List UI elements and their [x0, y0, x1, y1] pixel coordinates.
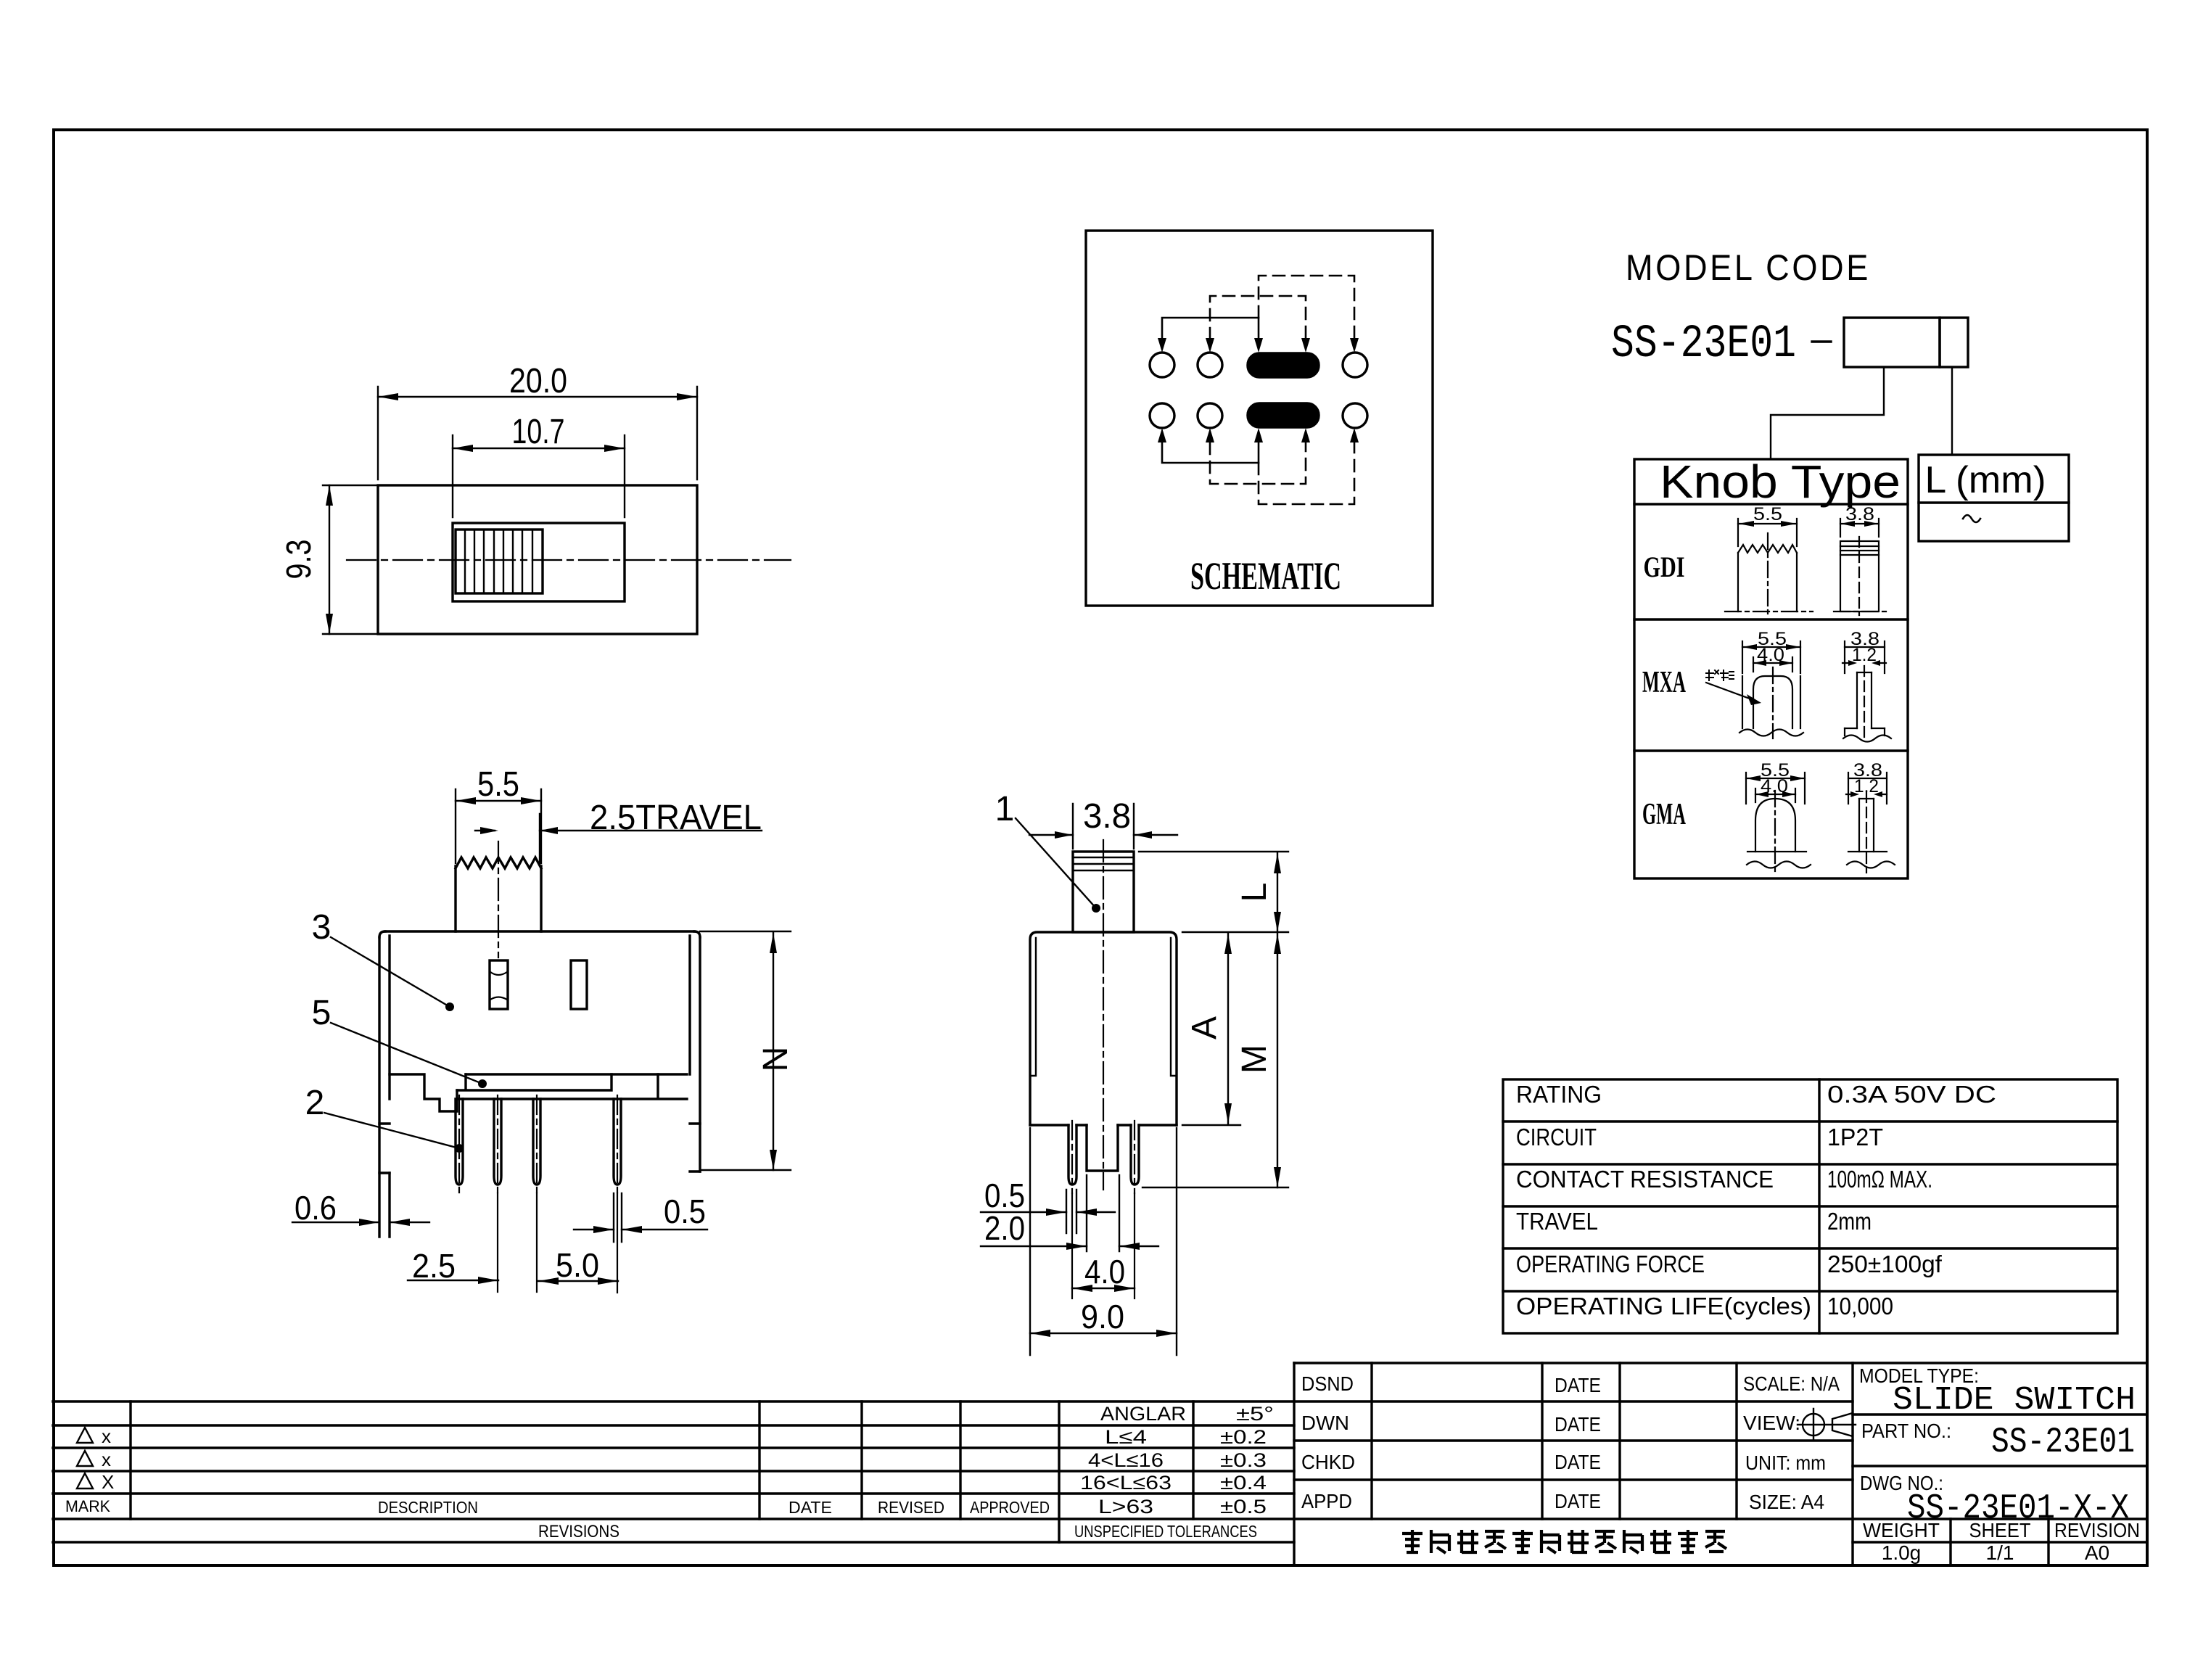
svg-text:SIZE: A4: SIZE: A4 [1749, 1491, 1824, 1513]
svg-text:±0.4: ±0.4 [1220, 1472, 1267, 1494]
svg-text:L>63: L>63 [1098, 1496, 1153, 1518]
svg-text:±5°: ±5° [1236, 1403, 1274, 1425]
svg-text:DATE: DATE [789, 1498, 832, 1517]
svg-text:RATING: RATING [1516, 1081, 1602, 1108]
svg-text:20.0: 20.0 [509, 362, 567, 400]
svg-text:9.0: 9.0 [1081, 1298, 1124, 1335]
svg-text:4.0: 4.0 [1757, 645, 1784, 665]
svg-text:±0.5: ±0.5 [1220, 1496, 1267, 1518]
svg-text:REVISIONS: REVISIONS [538, 1522, 619, 1541]
svg-text:1.2: 1.2 [1854, 776, 1879, 796]
svg-text:5.0: 5.0 [556, 1246, 599, 1284]
svg-text:L (mm): L (mm) [1925, 459, 2046, 501]
svg-text:5: 5 [312, 994, 332, 1032]
svg-text:x: x [102, 1449, 111, 1470]
svg-text:9.3: 9.3 [280, 540, 318, 580]
svg-text:1: 1 [995, 790, 1015, 828]
svg-text:10,000: 10,000 [1827, 1293, 1893, 1319]
svg-text:4<L≤16: 4<L≤16 [1088, 1449, 1164, 1471]
svg-text:PART NO.:: PART NO.: [1861, 1420, 1951, 1442]
svg-text:SS-23E01-X-X: SS-23E01-X-X [1907, 1489, 2129, 1528]
svg-text:UNSPECIFIED TOLERANCES: UNSPECIFIED TOLERANCES [1074, 1522, 1257, 1541]
svg-text:2.5TRAVEL: 2.5TRAVEL [590, 799, 762, 837]
svg-text:A: A [1185, 1016, 1224, 1039]
svg-text:SCHEMATIC: SCHEMATIC [1190, 554, 1341, 598]
svg-text:1.0g: 1.0g [1882, 1541, 1922, 1564]
svg-text:N: N [757, 1047, 795, 1072]
svg-text:M: M [1235, 1045, 1274, 1074]
svg-text:3.8: 3.8 [1845, 504, 1874, 524]
svg-text:SCALE: N/A: SCALE: N/A [1743, 1372, 1840, 1395]
svg-text:2.0: 2.0 [984, 1209, 1025, 1247]
svg-text:CHKD: CHKD [1301, 1451, 1355, 1473]
svg-text:SS-23E01: SS-23E01 [1611, 318, 1796, 371]
svg-text:CIRCUIT: CIRCUIT [1516, 1124, 1597, 1150]
svg-text:DATE: DATE [1555, 1413, 1601, 1436]
svg-text:DATE: DATE [1555, 1490, 1601, 1512]
svg-text:±0.2: ±0.2 [1220, 1426, 1267, 1448]
svg-text:5.5: 5.5 [477, 765, 519, 804]
svg-text:X: X [102, 1471, 114, 1493]
svg-text:A0: A0 [2085, 1541, 2109, 1564]
svg-text:1.2: 1.2 [1852, 645, 1877, 665]
svg-text:0.3A 50V DC: 0.3A 50V DC [1827, 1081, 1996, 1108]
svg-text:CONTACT RESISTANCE: CONTACT RESISTANCE [1516, 1166, 1774, 1193]
svg-text:UNIT: mm: UNIT: mm [1745, 1452, 1826, 1474]
svg-text:OPERATING FORCE: OPERATING FORCE [1516, 1251, 1705, 1277]
svg-text:3: 3 [312, 908, 332, 947]
svg-text:DATE: DATE [1555, 1451, 1601, 1473]
svg-text:MXA: MXA [1642, 666, 1686, 699]
svg-text:SLIDE SWITCH: SLIDE SWITCH [1893, 1382, 2136, 1419]
svg-text:GDI: GDI [1644, 551, 1685, 583]
svg-text:2mm: 2mm [1827, 1208, 1872, 1235]
svg-text:DATE: DATE [1555, 1374, 1601, 1396]
svg-text:L: L [1235, 883, 1274, 902]
svg-text:±0.3: ±0.3 [1220, 1449, 1267, 1471]
svg-text:DWN: DWN [1301, 1412, 1349, 1434]
svg-text:x: x [102, 1425, 111, 1447]
svg-text:APPROVED: APPROVED [970, 1498, 1050, 1517]
svg-text:0.6: 0.6 [295, 1189, 337, 1227]
svg-text:100mΩ MAX.: 100mΩ MAX. [1827, 1166, 1932, 1193]
svg-text:SS-23E01: SS-23E01 [1991, 1422, 2135, 1462]
svg-text:DSND: DSND [1301, 1372, 1354, 1395]
svg-text:L≤4: L≤4 [1105, 1426, 1147, 1448]
svg-text:MODEL CODE: MODEL CODE [1626, 247, 1871, 288]
svg-text:OPERATING LIFE(cycles): OPERATING LIFE(cycles) [1516, 1293, 1811, 1319]
svg-text:GMA: GMA [1642, 798, 1686, 831]
svg-text:ANGLAR: ANGLAR [1100, 1403, 1186, 1425]
svg-text:2.5: 2.5 [412, 1247, 456, 1285]
svg-text:10.7: 10.7 [512, 413, 565, 451]
svg-text:2: 2 [305, 1084, 325, 1122]
svg-text:4.0: 4.0 [1084, 1253, 1125, 1290]
svg-text:DESCRIPTION: DESCRIPTION [378, 1498, 478, 1517]
svg-text:TRAVEL: TRAVEL [1516, 1208, 1598, 1235]
svg-text:APPD: APPD [1301, 1490, 1352, 1512]
svg-text:16<L≤63: 16<L≤63 [1080, 1472, 1172, 1494]
svg-text:VIEW:: VIEW: [1743, 1412, 1800, 1434]
svg-text:0.5: 0.5 [664, 1193, 706, 1230]
svg-text:MARK: MARK [65, 1497, 110, 1515]
svg-text:3.8: 3.8 [1083, 797, 1131, 836]
svg-text:250±100gf: 250±100gf [1827, 1251, 1943, 1277]
svg-text:1/1: 1/1 [1986, 1541, 2014, 1564]
svg-text:REVISED: REVISED [878, 1498, 944, 1517]
svg-text:4.0: 4.0 [1761, 776, 1788, 796]
svg-text:1P2T: 1P2T [1827, 1124, 1883, 1150]
svg-text:Knob Type: Knob Type [1660, 456, 1901, 508]
svg-text:5.5: 5.5 [1753, 504, 1782, 524]
